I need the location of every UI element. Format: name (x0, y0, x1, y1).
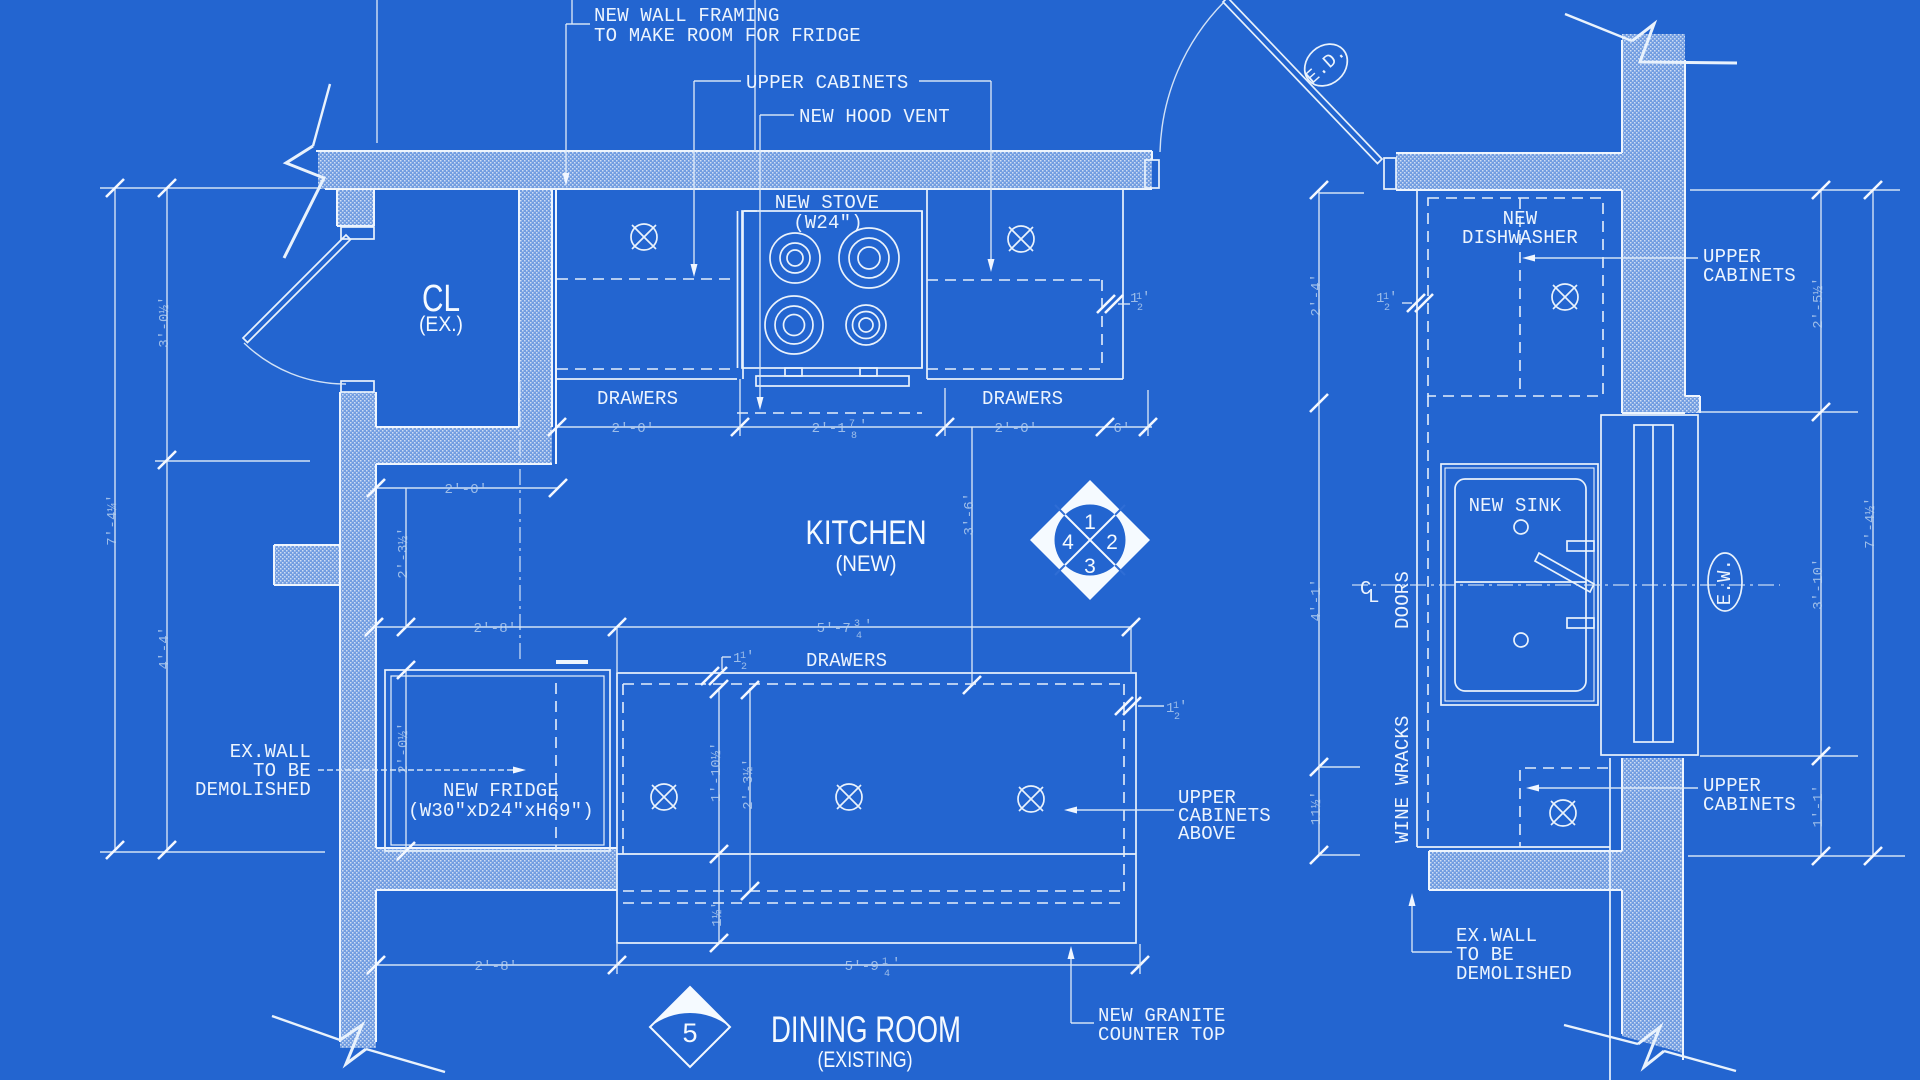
svg-text:CABINETS: CABINETS (1703, 794, 1796, 816)
svg-text:7'-4¼′: 7'-4¼′ (105, 494, 121, 546)
svg-text:DRAWERS: DRAWERS (982, 388, 1063, 410)
svg-text:(W24"): (W24") (793, 212, 863, 234)
svg-text:1'-10½′: 1'-10½′ (709, 742, 725, 802)
svg-text:2'-0′: 2'-0′ (611, 421, 654, 437)
svg-text:TO MAKE ROOM FOR FRIDGE: TO MAKE ROOM FOR FRIDGE (594, 25, 861, 47)
svg-text:5: 5 (682, 1018, 697, 1048)
svg-text:COUNTER TOP: COUNTER TOP (1098, 1024, 1226, 1046)
svg-text:DISHWASHER: DISHWASHER (1462, 227, 1578, 249)
svg-text:5'-9: 5'-9 (845, 959, 879, 975)
svg-text:KITCHEN: KITCHEN (806, 514, 927, 552)
svg-text:DRAWERS: DRAWERS (597, 388, 678, 410)
svg-text:′: ′ (1389, 290, 1398, 306)
svg-text:NEW WALL FRAMING: NEW WALL FRAMING (594, 5, 780, 27)
svg-text:DINING ROOM: DINING ROOM (771, 1009, 961, 1050)
svg-text:1: 1 (882, 957, 888, 968)
svg-text:CABINETS: CABINETS (1703, 265, 1796, 287)
svg-text:2'-3½′: 2'-3½′ (396, 527, 412, 579)
svg-text:DRAWERS: DRAWERS (806, 650, 887, 672)
svg-text:′: ′ (1142, 290, 1151, 306)
svg-text:2'-3½′: 2'-3½′ (741, 758, 757, 810)
svg-text:2'-0′: 2'-0′ (444, 482, 487, 498)
svg-text:6′: 6′ (1113, 421, 1130, 437)
svg-text:4: 4 (856, 631, 862, 642)
svg-text:NEW HOOD VENT: NEW HOOD VENT (799, 106, 950, 128)
svg-text:7: 7 (849, 419, 855, 430)
svg-text:′: ′ (859, 418, 868, 434)
svg-text:3: 3 (854, 619, 860, 630)
svg-text:NEW STOVE: NEW STOVE (775, 192, 879, 214)
svg-text:NEW FRIDGE: NEW FRIDGE (443, 780, 559, 802)
svg-text:3'-0½′: 3'-0½′ (157, 296, 173, 348)
svg-text:2'-4′: 2'-4′ (1309, 273, 1325, 316)
svg-text:WINE WRACKS: WINE WRACKS (1392, 715, 1414, 843)
svg-text:(EX.): (EX.) (419, 313, 463, 336)
svg-text:1: 1 (1084, 511, 1096, 534)
svg-text:1½′: 1½′ (710, 901, 726, 927)
svg-text:5'-7: 5'-7 (817, 621, 851, 637)
svg-text:11½′: 11½′ (1309, 791, 1325, 825)
svg-text:′: ′ (1179, 699, 1188, 715)
svg-text:2'-1: 2'-1 (812, 421, 846, 437)
svg-text:2'-5½′: 2'-5½′ (1811, 277, 1827, 329)
svg-text:3: 3 (1084, 555, 1096, 578)
svg-text:2'-0′: 2'-0′ (994, 421, 1037, 437)
svg-text:2'-0½′: 2'-0½′ (396, 722, 412, 774)
svg-text:UPPER CABINETS: UPPER CABINETS (746, 72, 908, 94)
svg-text:4'-4′: 4'-4′ (157, 626, 173, 669)
svg-text:′: ′ (864, 618, 873, 634)
svg-text:ABOVE: ABOVE (1178, 823, 1236, 845)
svg-text:3'-6′: 3'-6′ (962, 492, 978, 535)
svg-text:7'-4½′: 7'-4½′ (1863, 497, 1879, 549)
svg-text:2'-8′: 2'-8′ (473, 621, 516, 637)
svg-text:′: ′ (892, 956, 901, 972)
svg-text:4: 4 (884, 969, 890, 980)
svg-text:(EXISTING): (EXISTING) (818, 1047, 913, 1072)
svg-text:2: 2 (1106, 531, 1118, 554)
svg-text:DEMOLISHED: DEMOLISHED (195, 779, 311, 801)
svg-text:2'-8′: 2'-8′ (474, 959, 517, 975)
svg-text:8: 8 (851, 431, 857, 442)
svg-text:′: ′ (746, 649, 755, 665)
svg-text:(W30"xD24"xH69"): (W30"xD24"xH69") (408, 800, 594, 822)
svg-text:3'-10′: 3'-10′ (1811, 558, 1827, 610)
svg-text:DEMOLISHED: DEMOLISHED (1456, 963, 1572, 985)
svg-text:(NEW): (NEW) (836, 551, 897, 576)
svg-text:NEW SINK: NEW SINK (1469, 495, 1562, 517)
svg-text:E.W.: E.W. (1714, 559, 1736, 605)
svg-text:4: 4 (1062, 531, 1074, 554)
svg-text:4'-1′: 4'-1′ (1309, 578, 1325, 621)
svg-text:DOORS: DOORS (1392, 571, 1414, 629)
svg-text:1'-1′: 1'-1′ (1811, 784, 1827, 827)
svg-text:L: L (1368, 586, 1380, 608)
